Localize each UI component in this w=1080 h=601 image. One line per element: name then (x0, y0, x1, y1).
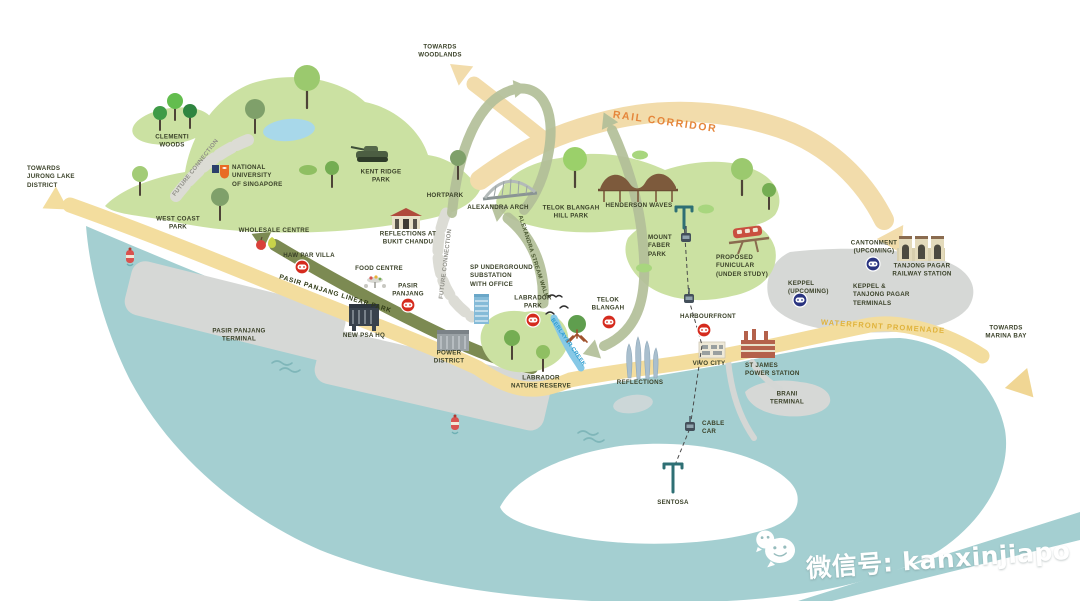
label-kent-ridge-park: KENT RIDGE PARK (361, 169, 402, 186)
bush-icon (299, 165, 317, 175)
label-keppel-terminals: KEPPEL & TANJONG PAGAR TERMINALS (853, 283, 910, 308)
mrt-icon-harbourfront (697, 323, 711, 337)
mrt-icon-pasir-panjang (401, 298, 415, 312)
label-west-coast-park: WEST COAST PARK (156, 216, 200, 233)
label-pasir-panjang: PASIR PANJANG (392, 283, 424, 300)
label-tanjong-pagar-station: TANJONG PAGAR RAILWAY STATION (892, 263, 951, 280)
label-vivo-city: VIVO CITY (693, 360, 726, 368)
sp-substation-icon (474, 294, 489, 324)
marina-arrowhead (1005, 368, 1045, 407)
label-haw-par-villa: HAW PAR VILLA (283, 252, 335, 260)
label-towards-jurong: TOWARDS JURONG LAKE DISTRICT (27, 165, 75, 190)
railway-station-icon (897, 236, 945, 261)
mrt-icon-telok-blangah (602, 315, 616, 329)
vivo-city-icon (699, 342, 725, 358)
mrt-icon-cantonment (866, 257, 880, 271)
label-hortpark: HORTPARK (427, 192, 464, 200)
label-cable-car: CABLE CAR (702, 420, 725, 437)
label-labrador-park: LABRADOR PARK (514, 295, 551, 312)
bush-icon (698, 205, 714, 214)
label-new-psa-hq: NEW PSA HQ (343, 332, 385, 340)
label-labrador-reserve: LABRADOR NATURE RESERVE (511, 375, 571, 392)
label-towards-marina-bay: TOWARDS MARINA BAY (985, 325, 1026, 342)
mrt-icon-haw-par-villa (295, 260, 309, 274)
st-james-icon (741, 329, 775, 358)
label-pasir-panjang-terminal: PASIR PANJANG TERMINAL (212, 328, 265, 345)
label-telok-blangah-hill: TELOK BLANGAH HILL PARK (543, 205, 600, 222)
label-harbourfront: HARBOURFRONT (680, 313, 736, 321)
label-power-district: POWER DISTRICT (434, 350, 465, 367)
label-clementi-woods: CLEMENTI WOODS (155, 134, 189, 151)
food-centre-icon (364, 275, 386, 288)
label-alexandra-arch: ALEXANDRA ARCH (467, 204, 528, 212)
bush-icon (632, 151, 648, 160)
label-henderson-waves: HENDERSON WAVES (606, 202, 673, 210)
label-sentosa: SENTOSA (657, 499, 689, 507)
label-bukit-chandu: REFLECTIONS AT BUKIT CHANDU (380, 231, 436, 248)
label-food-centre: FOOD CENTRE (355, 265, 403, 273)
label-keppel-upcoming: KEPPEL (UPCOMING) (788, 280, 829, 297)
mangrove-icon (567, 315, 587, 342)
jurong-arrowhead (36, 187, 68, 220)
power-district-icon (437, 330, 469, 351)
label-st-james: ST JAMES POWER STATION (745, 362, 800, 379)
label-sp-substation: SP UNDERGROUND SUBSTATION WITH OFFICE (470, 264, 533, 289)
map-canvas: TOWARDS JURONG LAKE DISTRICT CLEMENTI WO… (0, 0, 1080, 601)
label-proposed-funicular: PROPOSED FUNICULAR (UNDER STUDY) (716, 254, 768, 279)
label-wholesale-centre: WHOLESALE CENTRE (239, 227, 310, 235)
label-cantonment: CANTONMENT (UPCOMING) (851, 240, 897, 257)
bush-icon (636, 264, 652, 273)
label-telok-blangah: TELOK BLANGAH (592, 297, 625, 314)
label-mount-faber: MOUNT FABER PARK (648, 234, 672, 259)
label-brani-terminal: BRANI TERMINAL (770, 391, 804, 408)
label-towards-woodlands: TOWARDS WOODLANDS (418, 44, 462, 61)
label-nus: NATIONAL UNIVERSITY OF SINGAPORE (232, 164, 282, 189)
mrt-icon-labrador-park (526, 313, 540, 327)
label-reflections: REFLECTIONS (617, 379, 663, 387)
pear-icon (268, 237, 276, 248)
